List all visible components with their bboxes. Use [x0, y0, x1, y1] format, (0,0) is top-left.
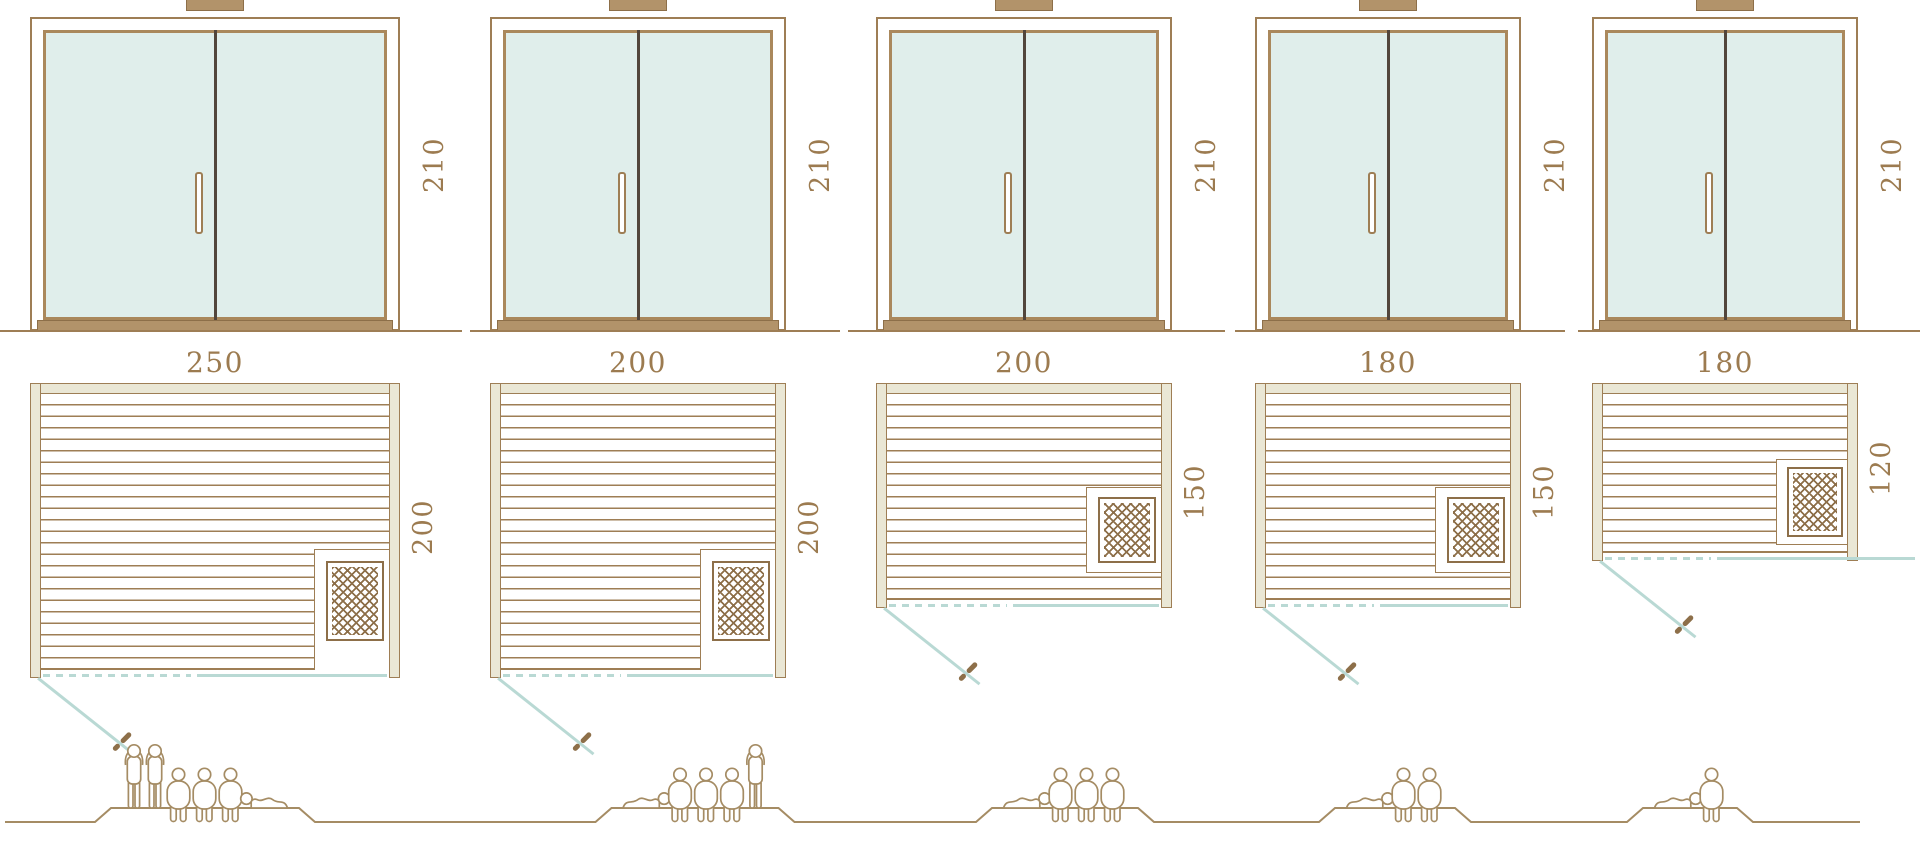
- plan-depth-label: 200: [408, 487, 438, 567]
- door-height-label: 210: [1877, 125, 1907, 205]
- plan-right-wall: [775, 383, 786, 678]
- door-opening-dashed-line: [1605, 557, 1711, 560]
- heater-element-hatch: [718, 567, 764, 635]
- handle-bar: [1682, 614, 1694, 626]
- door-handle: [1004, 172, 1012, 234]
- door-height-label: 210: [805, 125, 835, 205]
- sauna-size-diagram: 2102502002102002002102001502101801502101…: [0, 0, 1920, 856]
- door-opening-line: [627, 674, 773, 677]
- door-opening-dashed-line: [503, 674, 621, 677]
- plan-left-wall: [490, 383, 501, 678]
- roof-vent-cap: [186, 0, 244, 11]
- capacity-figure-seated: [1101, 768, 1124, 821]
- capacity-figure-lying: [1655, 793, 1702, 808]
- door-height-label: 210: [1191, 125, 1221, 205]
- roof-vent-cap: [609, 0, 667, 11]
- capacity-figure-seated: [193, 768, 216, 821]
- capacity-figure-seated: [219, 768, 242, 821]
- plan-top-wall: [1592, 383, 1858, 394]
- handle-bar: [966, 661, 978, 673]
- door-height-label: 210: [419, 125, 449, 205]
- plan-right-wall: [1510, 383, 1521, 608]
- ground-line: [848, 330, 1225, 332]
- plan-width-label: 200: [964, 346, 1084, 379]
- heater-element-hatch: [1793, 473, 1837, 531]
- capacity-figure-seated: [1418, 768, 1441, 821]
- handle-knob: [112, 743, 121, 752]
- sauna-heater: [712, 561, 770, 641]
- handle-knob: [1674, 626, 1683, 635]
- capacity-figure-lying: [241, 793, 288, 808]
- plan-left-wall: [1255, 383, 1266, 608]
- plan-right-wall: [1161, 383, 1172, 608]
- heater-element-hatch: [1104, 503, 1150, 557]
- door-opening-line: [1380, 604, 1508, 607]
- handle-knob: [572, 743, 581, 752]
- capacity-figure-lying: [1347, 793, 1394, 808]
- sauna-heater: [1787, 467, 1843, 537]
- plan-top-wall: [490, 383, 786, 394]
- plan-left-wall: [876, 383, 887, 608]
- capacity-figure-seated: [1392, 768, 1415, 821]
- door-opening-dashed-line: [43, 674, 191, 677]
- door-handle: [618, 172, 626, 234]
- capacity-figure-standing: [747, 745, 764, 808]
- heater-element-hatch: [1453, 503, 1499, 557]
- roof-vent-cap: [995, 0, 1053, 11]
- plan-depth-label: 150: [1180, 452, 1210, 532]
- capacity-figure-standing: [125, 745, 142, 808]
- capacity-figure-standing: [146, 745, 163, 808]
- capacity-figure-seated: [721, 768, 744, 821]
- door-divider: [1387, 30, 1390, 320]
- handle-knob: [958, 673, 967, 682]
- door-divider: [1724, 30, 1727, 320]
- door-height-label: 210: [1540, 125, 1570, 205]
- plan-width-label: 180: [1328, 346, 1448, 379]
- plan-depth-label: 120: [1866, 428, 1896, 508]
- handle-bar: [580, 731, 592, 743]
- plan-width-label: 180: [1665, 346, 1785, 379]
- plan-top-wall: [1255, 383, 1521, 394]
- door-opening-line: [1013, 604, 1159, 607]
- door-handle: [195, 172, 203, 234]
- ground-line: [1235, 330, 1565, 332]
- capacity-figure-seated: [669, 768, 692, 821]
- capacity-figure-lying: [1004, 793, 1051, 808]
- door-opening-dashed-line: [889, 604, 1007, 607]
- plan-left-wall: [30, 383, 41, 678]
- ground-line: [1578, 330, 1920, 332]
- plan-right-wall: [389, 383, 400, 678]
- capacity-figure-lying: [623, 793, 670, 808]
- capacity-figure-seated: [1049, 768, 1072, 821]
- plan-width-label: 200: [578, 346, 698, 379]
- roof-vent-cap: [1696, 0, 1754, 11]
- door-opening-line: [1717, 557, 1915, 560]
- door-opening-line: [197, 674, 387, 677]
- ground-line: [470, 330, 840, 332]
- door-opening-dashed-line: [1268, 604, 1374, 607]
- plan-width-label: 250: [155, 346, 275, 379]
- handle-bar: [1345, 661, 1357, 673]
- ground-line: [0, 330, 462, 332]
- door-divider: [637, 30, 640, 320]
- sauna-heater: [1098, 497, 1156, 563]
- plan-top-wall: [30, 383, 400, 394]
- capacity-figure-seated: [1700, 768, 1723, 821]
- handle-bar: [120, 731, 132, 743]
- sauna-heater: [326, 561, 384, 641]
- plan-right-wall: [1847, 383, 1858, 561]
- sauna-heater: [1447, 497, 1505, 563]
- capacity-ground-line: [5, 808, 1860, 822]
- door-handle: [1705, 172, 1713, 234]
- plan-depth-label: 150: [1529, 452, 1559, 532]
- plan-left-wall: [1592, 383, 1603, 561]
- door-divider: [214, 30, 217, 320]
- plan-depth-label: 200: [794, 487, 824, 567]
- capacity-figure-seated: [167, 768, 190, 821]
- roof-vent-cap: [1359, 0, 1417, 11]
- door-handle: [1368, 172, 1376, 234]
- door-divider: [1023, 30, 1026, 320]
- capacity-figure-seated: [1075, 768, 1098, 821]
- capacity-figure-seated: [695, 768, 718, 821]
- plan-top-wall: [876, 383, 1172, 394]
- handle-knob: [1337, 673, 1346, 682]
- heater-element-hatch: [332, 567, 378, 635]
